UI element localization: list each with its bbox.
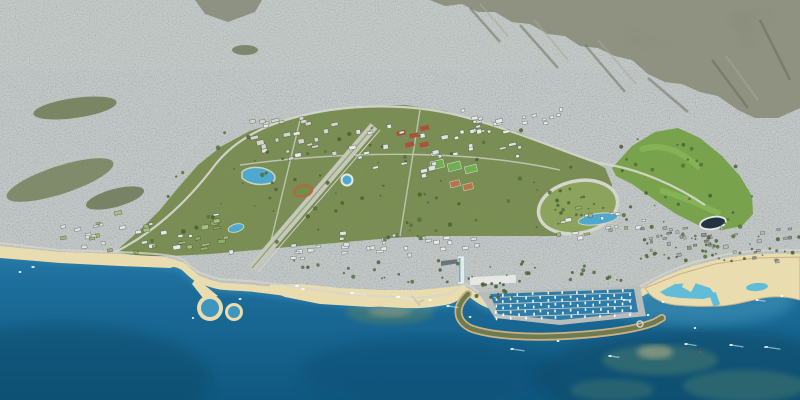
tree — [713, 244, 716, 247]
building — [756, 249, 760, 252]
tree — [702, 250, 705, 253]
tree — [351, 275, 355, 279]
tree — [676, 144, 678, 146]
moored-boat — [532, 292, 534, 295]
moored-boat — [562, 304, 564, 307]
moored-boat — [577, 311, 579, 314]
building — [788, 228, 792, 230]
tree — [223, 131, 226, 134]
building — [720, 226, 723, 230]
moored-boat — [517, 307, 519, 310]
tree — [273, 210, 275, 212]
tree — [667, 257, 670, 260]
tree — [625, 158, 628, 161]
moored-boat — [621, 297, 623, 300]
moored-boat — [524, 304, 526, 307]
moored-boat — [584, 315, 586, 318]
tree — [682, 143, 686, 147]
moored-boat — [517, 300, 519, 303]
building — [339, 237, 344, 240]
tree — [675, 256, 677, 258]
moored-boat — [607, 310, 609, 313]
building — [308, 248, 315, 252]
tree — [580, 272, 584, 276]
tree — [558, 223, 560, 225]
tree — [335, 192, 337, 194]
building — [577, 236, 583, 241]
tree — [504, 290, 508, 294]
moored-boat — [592, 304, 594, 307]
building — [733, 251, 736, 254]
tree — [220, 203, 222, 205]
tree — [499, 282, 501, 284]
building — [85, 235, 90, 239]
tree — [519, 128, 523, 132]
aerial-render-stage — [0, 0, 800, 400]
building — [61, 225, 66, 229]
building — [443, 236, 450, 240]
tree — [471, 276, 473, 278]
building — [425, 239, 431, 242]
tree — [435, 229, 438, 232]
tree — [654, 205, 656, 207]
tree — [242, 182, 244, 184]
tree — [602, 207, 604, 209]
building — [470, 129, 475, 133]
tree — [518, 176, 523, 181]
building — [522, 116, 526, 119]
tree — [406, 221, 409, 224]
tree — [475, 219, 478, 222]
moored-boat — [541, 317, 543, 320]
building — [195, 237, 201, 241]
building — [149, 223, 153, 226]
tree — [271, 181, 274, 184]
moored-boat — [599, 295, 601, 298]
moored-boat — [622, 289, 624, 292]
moored-boat — [614, 314, 616, 317]
building — [473, 120, 477, 123]
tree — [592, 271, 596, 275]
moored-boat — [502, 294, 504, 297]
tree — [694, 238, 696, 240]
building — [60, 236, 66, 240]
tree — [718, 257, 720, 259]
building — [516, 154, 520, 158]
moored-boat — [622, 309, 624, 312]
tree — [559, 189, 562, 192]
tree — [575, 213, 578, 216]
tree — [435, 196, 438, 199]
boat — [19, 271, 22, 273]
tree — [705, 243, 708, 246]
tree — [377, 260, 381, 264]
tree — [334, 209, 337, 212]
moored-boat — [502, 307, 504, 310]
building — [144, 224, 150, 228]
tree — [634, 163, 638, 167]
tree — [383, 238, 386, 241]
building — [600, 216, 604, 220]
tree — [533, 181, 535, 183]
building — [615, 212, 620, 215]
tree — [758, 236, 760, 238]
tree — [167, 195, 170, 198]
moored-boat — [592, 297, 594, 300]
tree — [703, 255, 707, 259]
building — [291, 244, 296, 248]
building — [543, 121, 548, 125]
tree — [593, 203, 595, 205]
tree — [301, 266, 304, 269]
moored-boat — [629, 313, 631, 316]
tree — [776, 237, 780, 241]
tree — [749, 243, 751, 245]
tree — [398, 273, 401, 276]
tree — [690, 147, 694, 151]
building — [542, 118, 546, 121]
building — [454, 136, 459, 140]
tree — [731, 234, 735, 238]
boat — [694, 327, 696, 329]
tree — [650, 168, 654, 172]
tree — [536, 189, 538, 191]
tree — [663, 254, 665, 256]
building — [754, 251, 757, 253]
tree — [494, 285, 498, 289]
moored-boat — [577, 304, 579, 307]
tree — [511, 296, 513, 298]
building — [99, 223, 103, 226]
tree — [475, 294, 479, 298]
tree — [738, 224, 742, 228]
tree — [582, 196, 585, 199]
tree — [293, 178, 296, 181]
building — [760, 231, 765, 234]
tree — [337, 137, 341, 141]
moored-boat — [600, 308, 602, 311]
building — [299, 116, 304, 120]
moored-boat — [510, 317, 512, 320]
building — [775, 259, 778, 262]
building — [178, 234, 183, 237]
tree — [506, 274, 508, 276]
tree — [646, 242, 648, 244]
tree — [727, 218, 730, 221]
tree — [216, 145, 221, 150]
tree — [275, 240, 279, 244]
tree — [569, 166, 572, 169]
moored-boat — [599, 301, 601, 304]
moored-boat — [516, 293, 518, 296]
sand-reef — [637, 345, 673, 359]
tree — [409, 223, 413, 227]
building — [462, 246, 468, 250]
tree — [548, 190, 552, 194]
tree — [711, 254, 714, 257]
building — [518, 145, 522, 149]
building — [342, 251, 348, 254]
building — [323, 129, 329, 134]
tree — [181, 171, 184, 174]
building — [223, 236, 228, 240]
building — [201, 224, 209, 230]
tree — [150, 239, 154, 243]
tree — [246, 135, 250, 139]
moored-boat — [539, 296, 541, 299]
tree — [784, 251, 786, 253]
tree — [708, 194, 712, 198]
tree — [467, 277, 470, 280]
tree — [621, 169, 624, 172]
building — [556, 113, 561, 116]
tree — [521, 260, 524, 263]
building — [663, 237, 667, 239]
tree — [694, 235, 697, 238]
moored-boat — [570, 302, 572, 305]
tree — [507, 199, 510, 202]
tree — [555, 199, 559, 203]
building — [687, 246, 691, 250]
tree — [450, 152, 453, 155]
tree — [233, 168, 235, 170]
moored-boat — [592, 310, 594, 313]
moored-boat — [585, 308, 587, 311]
building — [757, 239, 762, 242]
building — [314, 137, 319, 142]
tree — [716, 245, 720, 249]
moored-boat — [630, 306, 632, 309]
moored-boat — [548, 299, 550, 302]
tree — [207, 215, 211, 219]
tree — [360, 196, 364, 200]
building — [286, 150, 290, 154]
tree — [409, 230, 411, 232]
building — [640, 227, 644, 230]
building — [609, 229, 613, 232]
tree — [438, 268, 441, 271]
moored-boat — [510, 304, 512, 307]
tree — [534, 267, 536, 269]
building — [680, 235, 682, 238]
tree — [606, 276, 610, 280]
tree — [497, 293, 499, 295]
boat — [699, 351, 701, 353]
tree — [194, 225, 198, 229]
tree — [561, 208, 565, 212]
building — [300, 257, 304, 260]
building — [650, 240, 652, 243]
tree — [381, 145, 384, 148]
moored-boat — [532, 300, 534, 303]
tree — [419, 135, 421, 137]
building — [229, 250, 234, 255]
tree — [427, 202, 429, 204]
tree — [660, 235, 662, 237]
tree — [293, 260, 295, 262]
tree — [269, 197, 271, 199]
tree — [306, 266, 309, 269]
tree — [730, 260, 733, 263]
tree — [581, 268, 585, 272]
building — [487, 130, 491, 134]
building — [610, 212, 614, 215]
moored-boat — [547, 312, 549, 315]
tree — [571, 271, 574, 274]
tree — [715, 239, 719, 243]
building — [476, 129, 482, 134]
building — [723, 245, 728, 249]
tree — [619, 145, 623, 149]
building — [683, 227, 688, 229]
building — [650, 249, 652, 252]
tree — [254, 205, 256, 207]
moored-boat — [540, 310, 542, 313]
moored-boat — [584, 302, 586, 305]
building — [387, 124, 392, 129]
building — [438, 154, 442, 158]
tree — [441, 277, 443, 279]
tree — [377, 162, 379, 164]
building — [663, 227, 668, 230]
building — [783, 237, 787, 240]
tree — [211, 215, 215, 219]
building — [135, 251, 139, 254]
tree — [502, 283, 505, 286]
moored-boat — [555, 303, 557, 306]
moored-boat — [540, 303, 542, 306]
building — [565, 218, 572, 223]
tree — [645, 254, 648, 257]
tree — [489, 266, 491, 268]
moored-boat — [548, 305, 550, 308]
moored-boat — [571, 315, 573, 318]
tree — [656, 252, 658, 254]
building — [376, 250, 383, 253]
building — [788, 236, 792, 239]
building — [702, 234, 706, 236]
moored-boat — [554, 310, 556, 313]
tree — [616, 279, 618, 281]
moored-boat — [592, 290, 594, 293]
tree — [681, 164, 685, 168]
tree — [403, 155, 407, 159]
tree — [386, 236, 390, 240]
building — [575, 206, 582, 209]
building — [549, 116, 554, 119]
tree — [313, 206, 318, 211]
tree — [625, 218, 628, 221]
round-pond-amphitheater — [342, 175, 353, 186]
building — [656, 235, 659, 238]
moored-boat — [524, 310, 526, 313]
tree — [695, 160, 698, 163]
moored-boat — [502, 300, 504, 303]
tree — [381, 277, 383, 279]
building — [213, 218, 220, 223]
building — [461, 109, 465, 113]
tree — [423, 193, 426, 196]
tree — [496, 296, 498, 298]
building — [101, 241, 105, 245]
building — [358, 156, 362, 160]
moored-boat — [576, 291, 578, 294]
moored-boat — [525, 317, 527, 320]
building — [152, 244, 156, 248]
tree — [536, 226, 538, 228]
tree — [489, 296, 492, 299]
tree — [440, 180, 442, 182]
tree — [580, 214, 583, 217]
tree — [181, 229, 186, 234]
tree — [629, 205, 632, 208]
tree — [762, 254, 764, 256]
tree — [569, 278, 573, 282]
building — [606, 226, 611, 229]
building — [404, 246, 408, 250]
building — [161, 230, 168, 235]
tree — [580, 196, 582, 198]
moored-boat — [562, 312, 564, 315]
tree — [490, 282, 493, 285]
building — [556, 233, 560, 237]
tree — [373, 268, 376, 271]
tree — [663, 221, 665, 223]
tree — [643, 238, 646, 241]
tree — [743, 257, 746, 260]
tree — [644, 191, 648, 195]
tree — [306, 214, 310, 218]
tree — [653, 253, 656, 256]
tree — [622, 213, 626, 217]
tree — [265, 172, 268, 175]
tree — [266, 150, 270, 154]
building — [468, 147, 473, 151]
tree — [751, 195, 753, 197]
building — [572, 231, 579, 235]
building — [624, 226, 628, 229]
tree — [407, 281, 409, 283]
tree — [715, 253, 717, 255]
tower-glass — [459, 258, 461, 282]
building — [261, 144, 267, 150]
building — [295, 251, 300, 254]
building — [649, 237, 652, 240]
moored-boat — [614, 300, 616, 303]
building — [615, 225, 618, 228]
building — [135, 230, 141, 234]
tree — [681, 232, 684, 235]
building — [460, 130, 465, 134]
moored-boat — [495, 305, 497, 308]
tree — [410, 280, 414, 284]
aerial-masterplan-render — [0, 0, 800, 400]
tree — [559, 211, 563, 215]
moored-boat — [561, 299, 563, 302]
moored-boat — [495, 311, 497, 314]
moored-boat — [607, 290, 609, 293]
tree — [687, 158, 689, 160]
moored-boat — [629, 293, 631, 296]
tree — [688, 198, 691, 201]
building — [382, 241, 386, 244]
tree — [418, 192, 422, 196]
seagrass-reef — [570, 379, 654, 400]
building — [478, 117, 482, 120]
building — [588, 213, 592, 217]
tree — [775, 249, 778, 252]
building — [642, 219, 646, 222]
